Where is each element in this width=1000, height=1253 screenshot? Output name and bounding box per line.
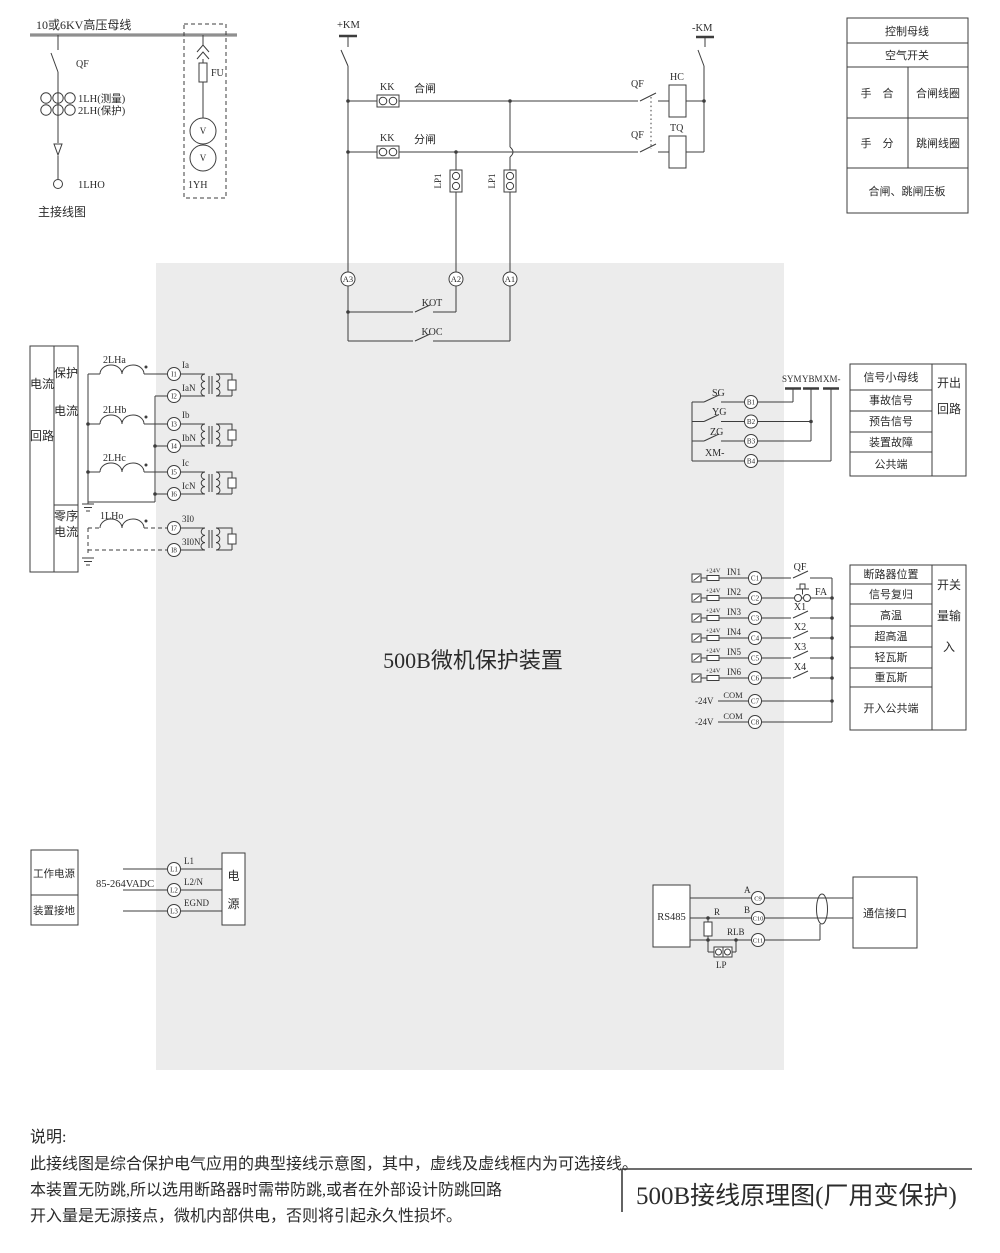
signal-table-row2: 事故信号 xyxy=(869,393,913,407)
terminal-A3-label: A3 xyxy=(343,274,353,284)
svg-text:IN4: IN4 xyxy=(727,627,741,637)
l1-label: L1 xyxy=(184,856,194,866)
svg-text:+24V: +24V xyxy=(706,608,721,615)
terminating-resistor xyxy=(704,922,712,936)
svg-text:IaN: IaN xyxy=(182,383,196,393)
notes-line1: 此接线图是综合保护电气应用的典型接线示意图，其中，虚线及虚线框内为可选接线。 xyxy=(30,1154,638,1173)
svg-text:QF: QF xyxy=(794,562,807,573)
schematic-sheet: 500B微机保护装置 10或6KV高压母线 QF 1LH(测量) 2LH(保护)… xyxy=(0,0,1000,1253)
svg-text:IN3: IN3 xyxy=(727,607,741,617)
svg-text:C3: C3 xyxy=(751,615,760,623)
svg-text:I3: I3 xyxy=(171,421,177,429)
minus24-label-1: -24V xyxy=(695,696,714,706)
svg-text:B1: B1 xyxy=(747,399,756,407)
a-label: A xyxy=(744,885,751,895)
r-label: R xyxy=(714,907,720,917)
terminal-A1-label: A1 xyxy=(505,274,515,284)
input-table-row4: 超高温 xyxy=(875,629,908,643)
svg-text:+24V: +24V xyxy=(706,668,721,675)
ground-symbol-1 xyxy=(82,504,94,511)
signal-table-row1: 信号小母线 xyxy=(864,370,919,384)
lp1-link-a2 xyxy=(450,170,462,192)
ct-measure-label: 1LH(测量) xyxy=(78,92,126,105)
lp1-link-a1 xyxy=(504,170,516,192)
b-label: B xyxy=(744,905,750,915)
svg-text:B2: B2 xyxy=(747,418,756,426)
svg-text:L1: L1 xyxy=(170,866,178,874)
input-table-row5: 轻瓦斯 xyxy=(875,650,908,664)
drawing-title: 500B接线原理图(厂用变保护) xyxy=(636,1182,957,1210)
comm-port-label: 通信接口 xyxy=(863,907,907,920)
legend-table: 控制母线 空气开关 手 合 合闸线圈 手 分 跳闸线圈 合闸、跳闸压板 xyxy=(847,18,968,213)
svg-text:I2: I2 xyxy=(171,393,177,401)
ybm-bus-label: YBM xyxy=(802,374,823,384)
hv-bus-label: 10或6KV高压母线 xyxy=(36,17,131,32)
fa-button-contact2 xyxy=(804,595,811,602)
kk2-label: KK xyxy=(380,133,395,144)
svg-text:IN1: IN1 xyxy=(727,567,741,577)
lp1a-label: LP1 xyxy=(487,173,497,188)
tq-label: TQ xyxy=(670,123,684,134)
svg-text:+24V: +24V xyxy=(706,648,721,655)
fa-button-cap xyxy=(800,584,805,589)
legend-footer: 合闸、跳闸压板 xyxy=(869,184,946,198)
title-block: 500B接线原理图(厂用变保护) xyxy=(622,1169,972,1212)
main-circuit-diagram: 10或6KV高压母线 QF 1LH(测量) 2LH(保护) 1LHO 主接线图 … xyxy=(30,17,237,219)
input-table-row2: 信号复归 xyxy=(869,587,913,601)
svg-text:Ic: Ic xyxy=(182,458,189,468)
svg-text:IN6: IN6 xyxy=(727,667,741,677)
zero-current-label: 零序电流 xyxy=(54,508,78,540)
legend-close-coil: 合闸线圈 xyxy=(916,86,960,100)
svg-text:3I0N: 3I0N xyxy=(182,537,201,547)
plus-km-label: +KM xyxy=(337,20,361,31)
svg-text:X2: X2 xyxy=(794,622,806,633)
svg-text:I8: I8 xyxy=(171,547,177,555)
ct-label-a: 2LHa xyxy=(103,355,126,366)
svg-text:+24V: +24V xyxy=(706,588,721,595)
power-row2: 装置接地 xyxy=(33,904,75,917)
svg-text:I4: I4 xyxy=(171,443,177,451)
svg-text:+24V: +24V xyxy=(706,568,721,575)
l2-label: L2/N xyxy=(184,877,203,887)
svg-text:C8: C8 xyxy=(751,719,760,727)
device-label: 500B微机保护装置 xyxy=(383,648,563,673)
sym-bus-label: SYM xyxy=(782,374,802,384)
lp1b-label: LP1 xyxy=(433,173,443,188)
svg-text:Ia: Ia xyxy=(182,360,189,370)
svg-text:I5: I5 xyxy=(171,469,177,477)
sg-label: SG xyxy=(712,388,725,399)
signal-table-row4: 装置故障 xyxy=(869,435,913,449)
svg-text:X1: X1 xyxy=(794,602,806,613)
legend-manual-close: 手 合 xyxy=(861,86,894,100)
load-arrow xyxy=(54,144,62,155)
svg-text:B4: B4 xyxy=(747,458,756,466)
protect-current-label: 保护电流 xyxy=(54,354,78,430)
ct-zero-label: 1LHO xyxy=(78,180,105,191)
pt-v2: V xyxy=(200,153,207,163)
zero-seq-wires xyxy=(88,528,168,556)
svg-text:IcN: IcN xyxy=(182,481,196,491)
hc-coil xyxy=(669,85,686,117)
qf-label: QF xyxy=(76,59,89,70)
xm-label: XM- xyxy=(705,448,724,459)
rlb-label: RLB xyxy=(727,927,745,937)
positive-rail xyxy=(341,36,348,272)
signal-table-row5: 公共端 xyxy=(875,458,908,471)
legend-row2: 空气开关 xyxy=(885,48,929,62)
yg-label: YG xyxy=(712,407,726,418)
ct-protect-label: 2LH(保护) xyxy=(78,104,126,117)
hc-label: HC xyxy=(670,72,684,83)
svg-text:C10: C10 xyxy=(753,916,764,923)
ct-label-0: 1LHo xyxy=(100,511,123,522)
svg-text:I7: I7 xyxy=(171,525,177,533)
zg-label: ZG xyxy=(710,427,723,438)
svg-text:IbN: IbN xyxy=(182,433,196,443)
svg-text:C6: C6 xyxy=(751,675,760,683)
close-label: 合闸 xyxy=(414,81,436,95)
signal-table-row3: 预告信号 xyxy=(869,415,913,428)
terminal-A2-label: A2 xyxy=(451,274,461,284)
input-table-row3: 高温 xyxy=(880,608,902,622)
pt-v1: V xyxy=(200,126,207,136)
egnd-label: EGND xyxy=(184,898,209,908)
svg-text:X4: X4 xyxy=(794,662,806,673)
input-table-row6: 重瓦斯 xyxy=(875,670,908,684)
legend-row1: 控制母线 xyxy=(885,24,929,38)
negative-rail xyxy=(698,37,705,152)
legend-trip-coil: 跳闸线圈 xyxy=(916,136,960,150)
qf1-label: QF xyxy=(631,79,644,90)
koc-label: KOC xyxy=(421,327,442,338)
com-label-1: COM xyxy=(723,690,743,700)
qf2-label: QF xyxy=(631,130,644,141)
com-label-2: COM xyxy=(723,711,743,721)
feeder-wire xyxy=(51,35,58,179)
power-box-label: 电源 xyxy=(222,862,245,918)
notes-line3: 开入量是无源接点，微机内部供电，否则将引起永久性损坏。 xyxy=(30,1207,462,1225)
svg-text:C5: C5 xyxy=(751,655,760,663)
minus24-label-2: -24V xyxy=(695,717,714,727)
kk1-label: KK xyxy=(380,82,395,93)
kot-label: KOT xyxy=(422,298,443,309)
svg-text:X3: X3 xyxy=(794,642,806,653)
signal-side-label: 开出回路 xyxy=(932,370,966,422)
svg-text:L3: L3 xyxy=(170,908,178,916)
svg-text:IN5: IN5 xyxy=(727,647,741,657)
power-range: 85-264VADC xyxy=(96,879,154,890)
main-diagram-caption: 主接线图 xyxy=(38,204,86,219)
fuse-symbol xyxy=(199,63,207,82)
svg-text:C7: C7 xyxy=(751,698,760,706)
fa-button-contact1 xyxy=(795,595,802,602)
svg-text:I6: I6 xyxy=(171,491,177,499)
trip-label: 分闸 xyxy=(414,133,436,146)
notes-head: 说明: xyxy=(30,1128,66,1146)
tq-coil xyxy=(669,136,686,168)
notes-line2: 本装置无防跳,所以选用断路器时需带防跳,或者在外部设计防跳回路 xyxy=(30,1181,502,1199)
optional-frame xyxy=(184,24,226,198)
fuse-label: FU xyxy=(211,68,225,79)
ct-label-b: 2LHb xyxy=(103,405,126,416)
lp-label: LP xyxy=(716,960,727,970)
input-side-label: 开关量输入 xyxy=(932,570,966,663)
svg-text:C4: C4 xyxy=(751,635,760,643)
ct-zero-symbol xyxy=(54,180,63,189)
kk-contact-trip xyxy=(377,146,399,158)
ground-symbol-2 xyxy=(82,558,94,565)
svg-text:B3: B3 xyxy=(747,438,756,446)
current-group-label: 电流回路 xyxy=(30,358,54,462)
xm-bus-label: XM- xyxy=(823,374,841,384)
kk-contact-close xyxy=(377,95,399,107)
svg-text:FA: FA xyxy=(815,587,828,598)
svg-text:I1: I1 xyxy=(171,371,177,379)
power-row1: 工作电源 xyxy=(33,867,75,880)
svg-text:C1: C1 xyxy=(751,575,760,583)
svg-text:C2: C2 xyxy=(751,595,760,603)
svg-text:3I0: 3I0 xyxy=(182,514,194,524)
svg-text:C9: C9 xyxy=(754,896,762,903)
minus-km-label: -KM xyxy=(692,23,713,34)
svg-text:+24V: +24V xyxy=(706,628,721,635)
notes: 说明: 此接线图是综合保护电气应用的典型接线示意图，其中，虚线及虚线框内为可选接… xyxy=(30,1128,638,1225)
input-table-row7: 开入公共端 xyxy=(864,702,919,715)
legend-manual-trip: 手 分 xyxy=(861,136,894,150)
svg-text:C11: C11 xyxy=(753,938,764,945)
svg-text:IN2: IN2 xyxy=(727,587,741,597)
ct-common-wires xyxy=(88,374,155,504)
svg-text:L2: L2 xyxy=(170,887,178,895)
svg-text:Ib: Ib xyxy=(182,410,190,420)
pt-label: 1YH xyxy=(188,180,207,191)
ct-label-c: 2LHc xyxy=(103,453,126,464)
rs485-label: RS485 xyxy=(657,912,686,923)
input-table-row1: 断路器位置 xyxy=(864,567,919,581)
